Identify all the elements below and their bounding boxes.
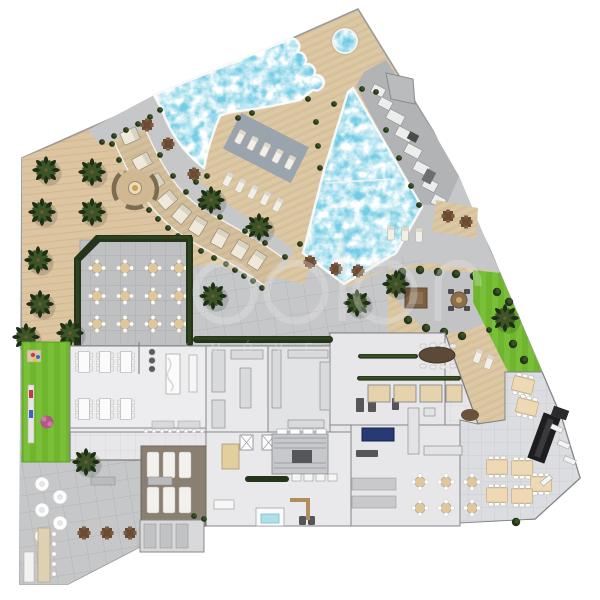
- svg-text:I M Ó V E I S: I M Ó V E I S: [185, 340, 378, 355]
